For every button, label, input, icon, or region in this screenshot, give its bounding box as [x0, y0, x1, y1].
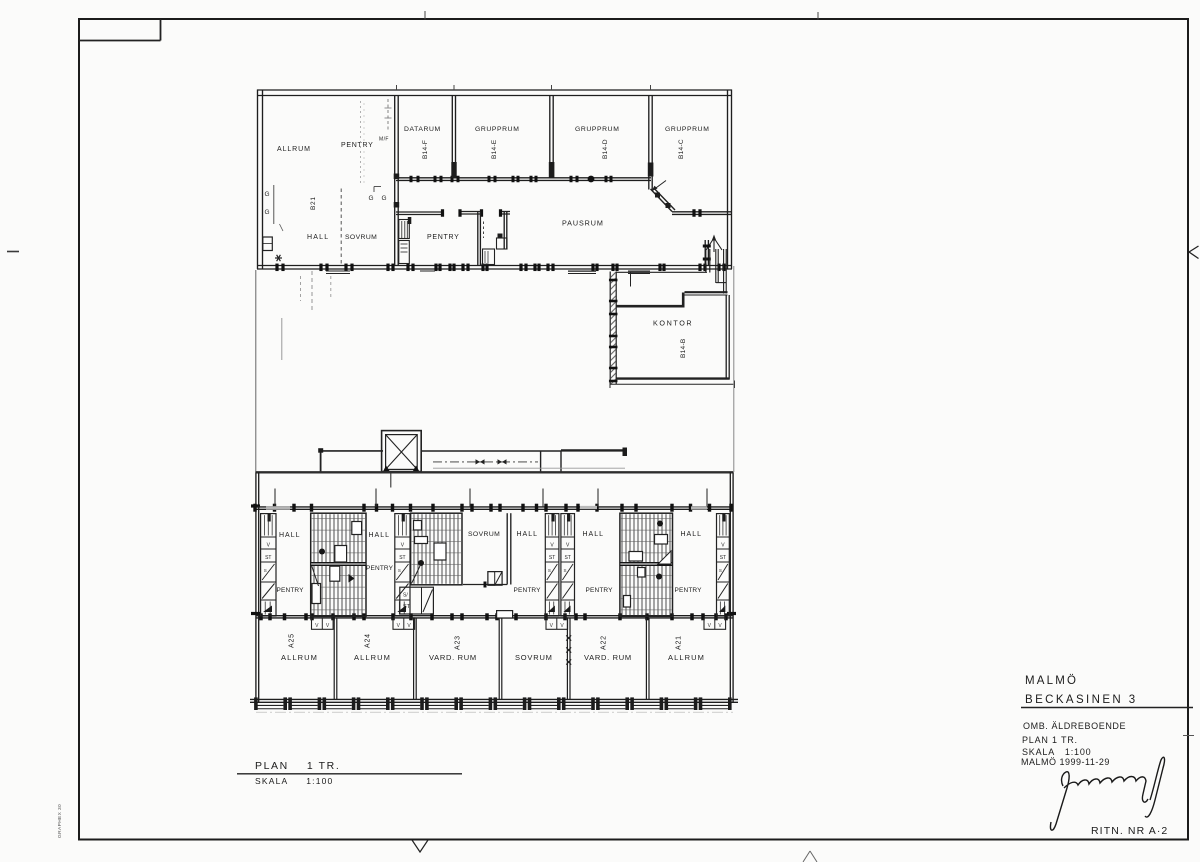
svg-text:ST: ST: [549, 555, 555, 561]
svg-text:SKALA 1:100: SKALA 1:100: [255, 776, 333, 786]
svg-text:B14-C: B14-C: [678, 139, 685, 159]
svg-text:HALL: HALL: [369, 532, 391, 539]
svg-text:PENTRY: PENTRY: [514, 587, 542, 594]
svg-text:A22: A22: [601, 635, 608, 650]
svg-text:GRUPPRUM: GRUPPRUM: [575, 126, 619, 133]
svg-text:S: S: [548, 568, 551, 573]
svg-text:GRUPPRUM: GRUPPRUM: [665, 126, 709, 133]
svg-text:HALL: HALL: [583, 531, 605, 538]
svg-text:ALLRUM: ALLRUM: [277, 146, 311, 153]
svg-text:B21: B21: [310, 196, 317, 210]
svg-text:ALLRUM: ALLRUM: [281, 653, 318, 662]
svg-text:PENTRY: PENTRY: [341, 142, 373, 149]
svg-text:S: S: [398, 568, 401, 573]
svg-text:HALL: HALL: [681, 531, 703, 538]
svg-text:ALLRUM: ALLRUM: [668, 653, 705, 662]
svg-text:SOVRUM: SOVRUM: [345, 234, 377, 241]
svg-text:SOVRUM: SOVRUM: [468, 531, 500, 538]
svg-text:ST: ST: [565, 555, 571, 561]
svg-text:A25: A25: [289, 633, 296, 648]
svg-text:ST: ST: [265, 555, 271, 561]
svg-text:S: S: [264, 568, 267, 573]
svg-text:HALL: HALL: [279, 532, 301, 539]
svg-text:PENTRY: PENTRY: [586, 587, 614, 594]
svg-text:HALL: HALL: [517, 531, 539, 538]
svg-text:S/: S/: [403, 593, 408, 599]
svg-text:A21: A21: [676, 635, 683, 650]
svg-text:M/F: M/F: [379, 137, 389, 143]
svg-text:VARD. RUM: VARD. RUM: [584, 653, 632, 662]
svg-text:G: G: [265, 209, 270, 216]
svg-text:SKALA 1:100: SKALA 1:100: [1022, 747, 1091, 757]
svg-text:GRUPPRUM: GRUPPRUM: [475, 126, 519, 133]
svg-text:B14-F: B14-F: [422, 140, 429, 159]
svg-text:PLAN 1 TR.: PLAN 1 TR.: [1022, 735, 1078, 745]
svg-text:PENTRY: PENTRY: [675, 587, 703, 594]
svg-text:KONTOR: KONTOR: [653, 319, 693, 328]
svg-text:ST: ST: [720, 555, 726, 561]
svg-text:B14-D: B14-D: [602, 139, 609, 159]
svg-text:HALL: HALL: [307, 234, 329, 241]
svg-text:A23: A23: [455, 635, 462, 650]
svg-text:ALLRUM: ALLRUM: [354, 653, 391, 662]
svg-text:B14-B: B14-B: [680, 338, 687, 358]
svg-text:ST: ST: [399, 555, 405, 561]
svg-text:S: S: [563, 568, 566, 573]
svg-text:PENTRY: PENTRY: [366, 565, 394, 572]
svg-text:VARD. RUM: VARD. RUM: [429, 653, 477, 662]
svg-text:ST: ST: [403, 604, 411, 610]
svg-text:PENTRY: PENTRY: [277, 587, 305, 594]
svg-text:DATARUM: DATARUM: [404, 126, 441, 133]
svg-text:SOVRUM: SOVRUM: [515, 653, 553, 662]
svg-text:G: G: [369, 195, 374, 202]
svg-text:A24: A24: [365, 633, 372, 648]
svg-text:S: S: [719, 568, 722, 573]
svg-text:PLAN 1 TR.: PLAN 1 TR.: [255, 760, 340, 772]
svg-text:PAUSRUM: PAUSRUM: [562, 219, 604, 228]
svg-text:BECKASINEN 3: BECKASINEN 3: [1025, 694, 1138, 706]
svg-text:RITN. NR A·2: RITN. NR A·2: [1091, 825, 1168, 837]
svg-text:PENTRY: PENTRY: [427, 234, 459, 241]
svg-text:MALMÖ: MALMÖ: [1025, 675, 1078, 687]
svg-text:OMB. ÄLDREBOENDE: OMB. ÄLDREBOENDE: [1023, 721, 1126, 731]
svg-text:GRAPHEX 30: GRAPHEX 30: [57, 804, 63, 838]
svg-text:G: G: [265, 191, 270, 198]
svg-text:B14-E: B14-E: [491, 139, 498, 159]
svg-text:G: G: [382, 195, 387, 202]
svg-text:MALMÖ 1999-11-29: MALMÖ 1999-11-29: [1021, 757, 1110, 767]
